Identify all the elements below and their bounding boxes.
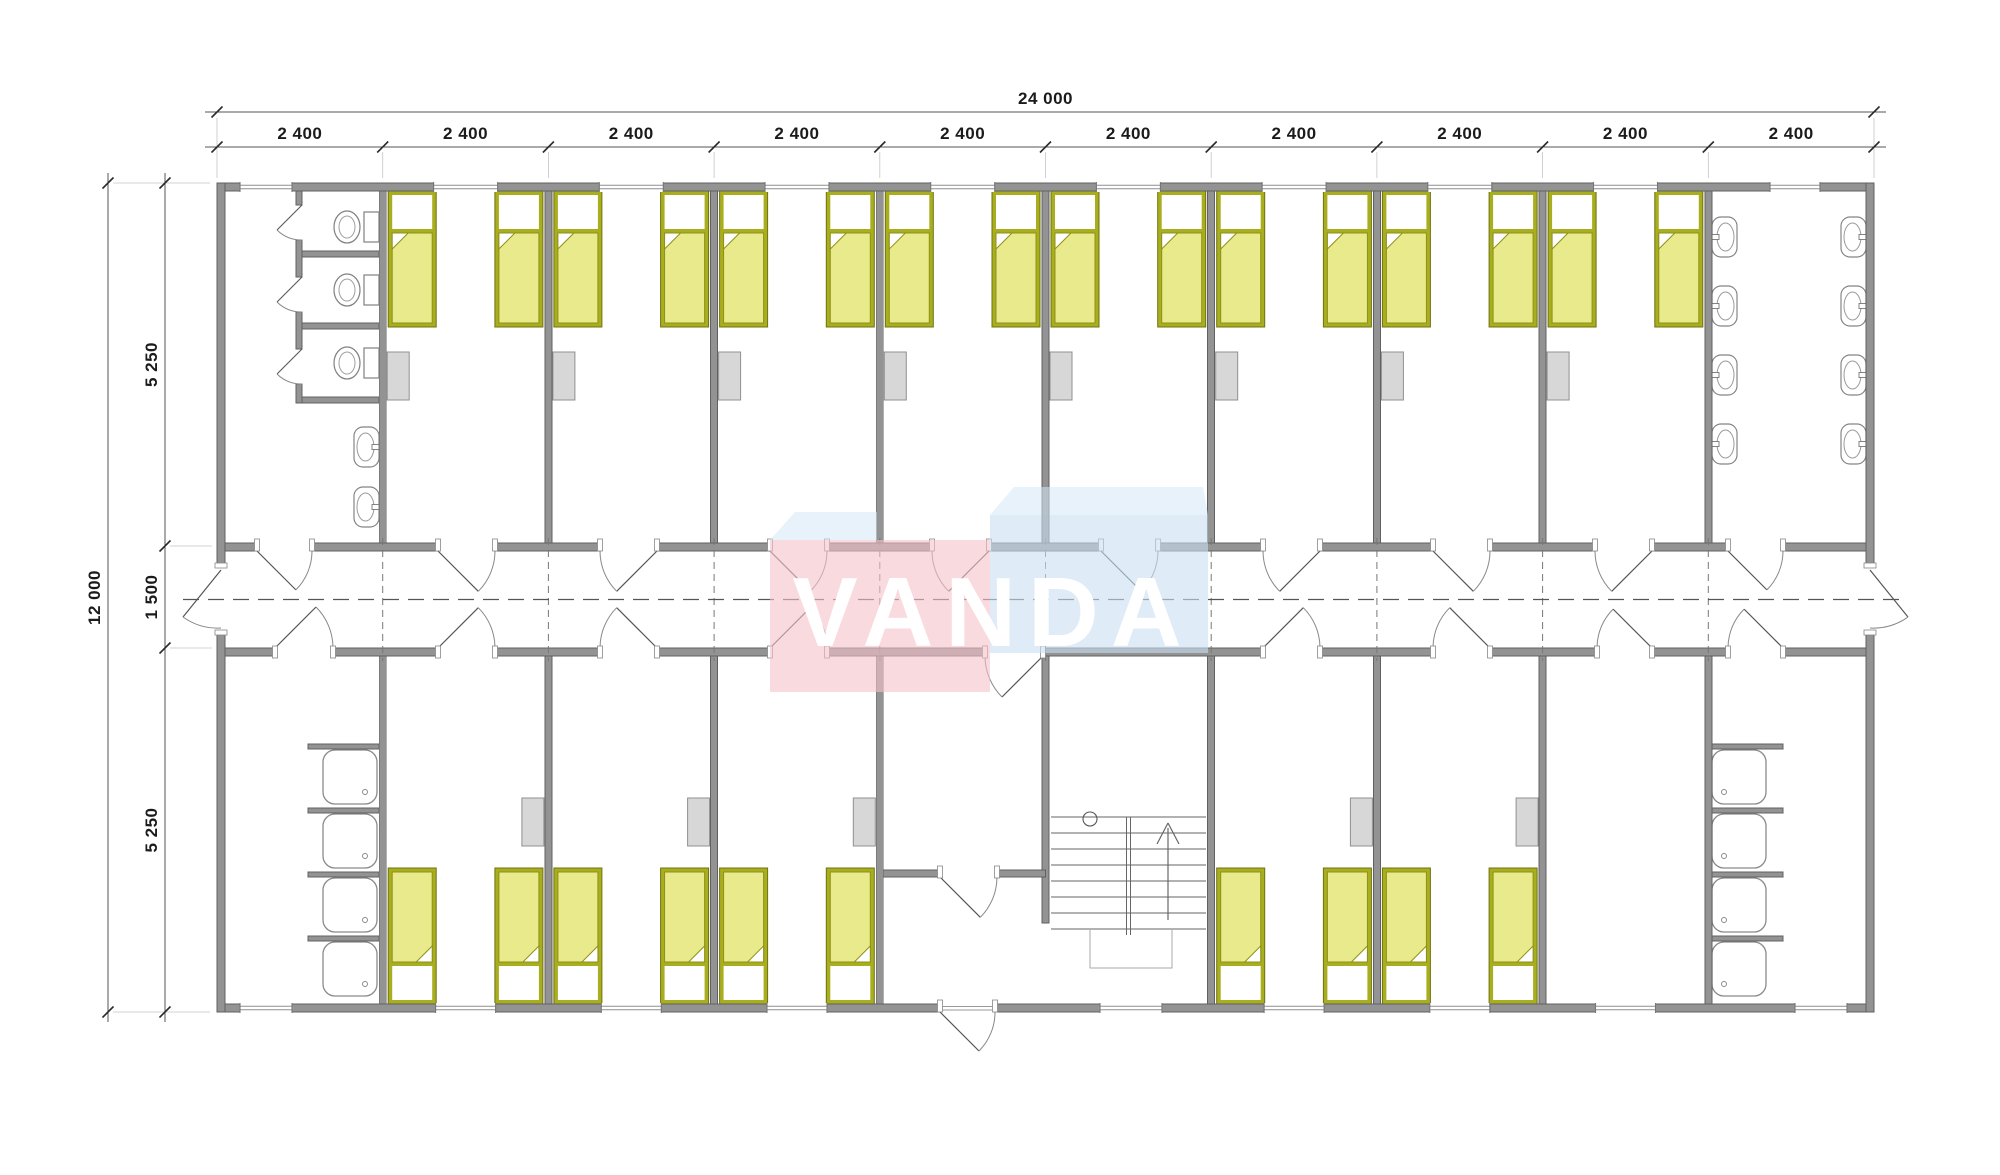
shower-tray [1712, 750, 1766, 804]
pillow [1659, 195, 1699, 229]
shower-tray [323, 750, 377, 804]
pillow [1386, 966, 1426, 1000]
wardrobe [387, 352, 409, 400]
blanket [830, 233, 870, 323]
door [275, 607, 333, 648]
toilet [334, 211, 379, 243]
blanket [830, 872, 870, 962]
pillow [392, 195, 432, 229]
dimension-label: 2 400 [443, 124, 488, 143]
floor-plan-canvas: 24 0002 4002 4002 4002 4002 4002 4002 40… [0, 0, 2000, 1175]
bed [1655, 191, 1703, 327]
toilet [334, 274, 379, 306]
door-leaf [1612, 551, 1652, 591]
blanket [889, 233, 929, 323]
pillow [558, 195, 598, 229]
blanket [996, 233, 1036, 323]
dimension-label: 2 400 [609, 124, 654, 143]
pillow [1552, 195, 1592, 229]
wardrobe [688, 798, 710, 846]
blanket [499, 872, 539, 962]
bed [1382, 191, 1430, 327]
wash-basin [354, 487, 379, 527]
pillow [665, 195, 705, 229]
door-leaf [617, 551, 657, 591]
corridor-end-door-right [1870, 570, 1908, 617]
wash-basin [1841, 424, 1866, 464]
pillow [724, 195, 764, 229]
pillow [889, 195, 929, 229]
dimension-label: 2 400 [1106, 124, 1151, 143]
door-swing-arc [1597, 609, 1613, 648]
window [240, 182, 292, 192]
dimension-label: 5 250 [142, 342, 161, 387]
door-swing-arc [1595, 551, 1612, 591]
wardrobe [1350, 798, 1372, 846]
watermark-blue-top-face [990, 487, 1208, 515]
window [1262, 182, 1326, 192]
blanket [724, 872, 764, 962]
blanket [1327, 233, 1367, 323]
bed [1382, 868, 1430, 1004]
window [1594, 182, 1658, 192]
blanket [665, 872, 705, 962]
dimension-label: 2 400 [940, 124, 985, 143]
stall-door-leaf [277, 277, 302, 302]
dimension-label: 2 400 [774, 124, 819, 143]
bed [1548, 191, 1596, 327]
wardrobe [884, 352, 906, 400]
wardrobe [1516, 798, 1538, 846]
wardrobe [1216, 352, 1238, 400]
window [601, 1003, 661, 1013]
dimension-label: 5 250 [142, 807, 161, 852]
pillow [1493, 966, 1533, 1000]
door [1597, 609, 1652, 648]
door-leaf [1433, 551, 1473, 591]
blanket [392, 872, 432, 962]
door-swing-arc [478, 551, 495, 591]
door-swing-arc [600, 608, 617, 648]
window [436, 1003, 496, 1013]
corridor-end-door-left [183, 570, 221, 617]
pillow [1221, 966, 1261, 1000]
wardrobe [1381, 352, 1403, 400]
window [1795, 1003, 1847, 1013]
entrance-door-leaf [940, 1012, 979, 1051]
bed [992, 191, 1040, 327]
wardrobe [522, 798, 544, 846]
door-swing-arc [1303, 608, 1320, 648]
window [1430, 1003, 1490, 1013]
shower-tray [1712, 942, 1766, 996]
pillow [499, 966, 539, 1000]
pillow [1493, 195, 1533, 229]
bed [661, 868, 709, 1004]
wash-basin [1841, 355, 1866, 395]
shower-tray [323, 814, 377, 868]
pillow [1327, 195, 1367, 229]
shower-tray [1712, 878, 1766, 932]
pillow [392, 966, 432, 1000]
pillow [1386, 195, 1426, 229]
blanket [1386, 872, 1426, 962]
pillow [665, 966, 705, 1000]
watermark-text: VANDA [792, 557, 1193, 667]
window [1428, 182, 1492, 192]
wash-basin [1712, 355, 1737, 395]
blanket [558, 233, 598, 323]
dimension-label: 2 400 [1437, 124, 1482, 143]
staircase [1051, 812, 1206, 968]
window [931, 182, 995, 192]
door-leaf [257, 551, 296, 590]
pillow [1221, 195, 1261, 229]
blanket [1162, 233, 1202, 323]
blanket [1493, 872, 1533, 962]
door [1263, 608, 1320, 648]
pillow [830, 966, 870, 1000]
bed [554, 191, 602, 327]
window [767, 1003, 827, 1013]
bed [826, 868, 874, 1004]
blanket [1221, 233, 1261, 323]
window [1100, 1003, 1162, 1013]
dimension-label: 2 400 [277, 124, 322, 143]
wash-basin [1841, 286, 1866, 326]
door [438, 551, 495, 591]
dimension-label: 24 000 [1018, 89, 1073, 108]
dimension-label: 12 000 [85, 570, 104, 625]
door-swing-arc [478, 608, 495, 648]
door-swing-arc [980, 877, 997, 917]
wardrobe [1547, 352, 1569, 400]
blanket [724, 233, 764, 323]
door-leaf [1728, 551, 1767, 590]
pillow [1327, 966, 1367, 1000]
door [940, 877, 997, 917]
bed [826, 191, 874, 327]
blanket [1386, 233, 1426, 323]
door-swing-arc [1433, 608, 1450, 648]
wash-basin [1712, 424, 1737, 464]
dimension-label: 2 400 [1603, 124, 1648, 143]
blanket [1221, 872, 1261, 962]
bed [388, 191, 436, 327]
door [1595, 551, 1652, 591]
window [765, 182, 829, 192]
door-swing-arc [1263, 551, 1280, 591]
wash-basin [1712, 217, 1737, 257]
wardrobe [553, 352, 575, 400]
door [257, 551, 312, 590]
pillow [724, 966, 764, 1000]
shower-tray [1712, 814, 1766, 868]
toilet [334, 347, 379, 379]
door-leaf [617, 608, 657, 648]
door-swing-arc [316, 607, 333, 648]
bed [885, 191, 933, 327]
door [1433, 608, 1490, 648]
bed [720, 191, 768, 327]
blanket [558, 872, 598, 962]
door-swing-arc [1728, 609, 1744, 648]
bed [1489, 868, 1537, 1004]
blanket [1493, 233, 1533, 323]
door-leaf [1744, 609, 1783, 648]
wash-basin [1712, 286, 1737, 326]
pillow [499, 195, 539, 229]
door-leaf [1280, 551, 1320, 591]
bed [495, 868, 543, 1004]
bed [1323, 868, 1371, 1004]
stall-door-leaf [277, 349, 302, 374]
watermark-pink-top-face [770, 512, 877, 540]
wardrobe [1050, 352, 1072, 400]
shower-tray [323, 942, 377, 996]
window [1096, 182, 1160, 192]
door [600, 551, 657, 591]
window [1770, 182, 1820, 192]
bed [1217, 868, 1265, 1004]
pillow [996, 195, 1036, 229]
wardrobe [853, 798, 875, 846]
blanket [1055, 233, 1095, 323]
door-swing-arc [600, 551, 617, 591]
floor-plan-page: 24 0002 4002 4002 4002 4002 4002 4002 40… [0, 0, 2000, 1175]
bed [1051, 191, 1099, 327]
door-leaf [275, 607, 316, 648]
door [1433, 551, 1490, 591]
bed [720, 868, 768, 1004]
stall-door-leaf [277, 205, 302, 230]
pillow [1055, 195, 1095, 229]
wardrobe [719, 352, 741, 400]
bed [388, 868, 436, 1004]
window [434, 182, 498, 192]
blanket [499, 233, 539, 323]
door-swing-arc [1473, 551, 1490, 591]
window [1264, 1003, 1324, 1013]
bed [1158, 191, 1206, 327]
door [438, 608, 495, 648]
bed [1323, 191, 1371, 327]
wash-basin [354, 427, 379, 467]
door [1728, 609, 1783, 648]
door-leaf [1263, 608, 1303, 648]
bed [661, 191, 709, 327]
vanda-watermark: VANDA [770, 487, 1208, 692]
blanket [1659, 233, 1699, 323]
door-leaf [1613, 609, 1652, 648]
bed [554, 868, 602, 1004]
pillow [1162, 195, 1202, 229]
pillow [830, 195, 870, 229]
pillow [558, 966, 598, 1000]
dimension-label: 2 400 [1272, 124, 1317, 143]
wash-basin [1841, 217, 1866, 257]
dimension-label: 1 500 [142, 574, 161, 619]
window [1596, 1003, 1656, 1013]
door-swing-arc [296, 551, 312, 590]
door-leaf [438, 551, 478, 591]
bed [1489, 191, 1537, 327]
door [1728, 551, 1783, 590]
door-leaf [438, 608, 478, 648]
door [600, 608, 657, 648]
shower-tray [323, 878, 377, 932]
bed [495, 191, 543, 327]
door-leaf [1450, 608, 1490, 648]
dimension-label: 2 400 [1769, 124, 1814, 143]
door-leaf [940, 877, 980, 917]
door [1263, 551, 1320, 591]
window [599, 182, 663, 192]
blanket [1552, 233, 1592, 323]
bed [1217, 191, 1265, 327]
blanket [665, 233, 705, 323]
blanket [1327, 872, 1367, 962]
door-swing-arc [1767, 551, 1783, 590]
window [240, 1003, 292, 1013]
blanket [392, 233, 432, 323]
